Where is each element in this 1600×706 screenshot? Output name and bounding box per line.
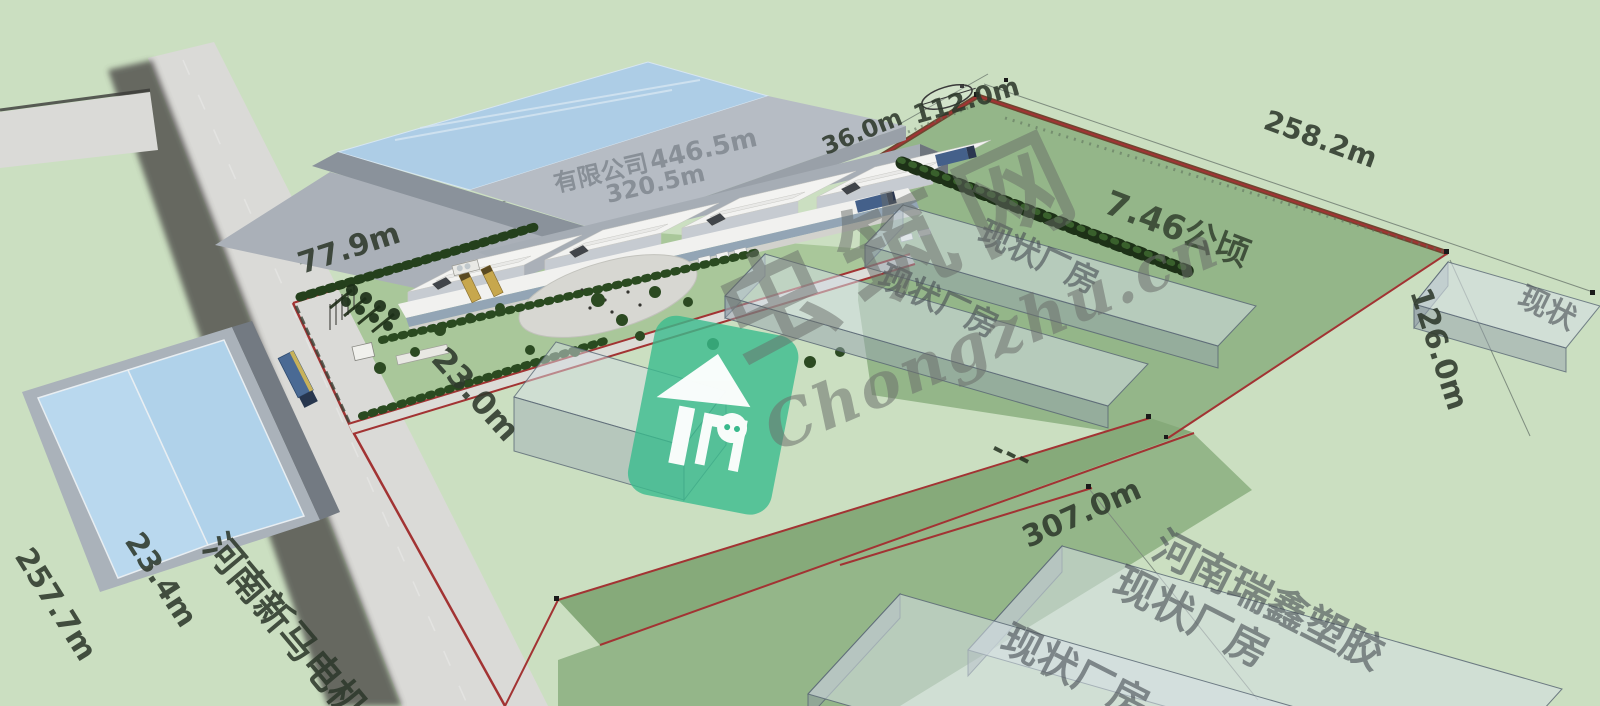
- site-plan-render: 36.0m 112.0m 258.2m 77.9m 23.0m 257.7m 2…: [0, 0, 1600, 706]
